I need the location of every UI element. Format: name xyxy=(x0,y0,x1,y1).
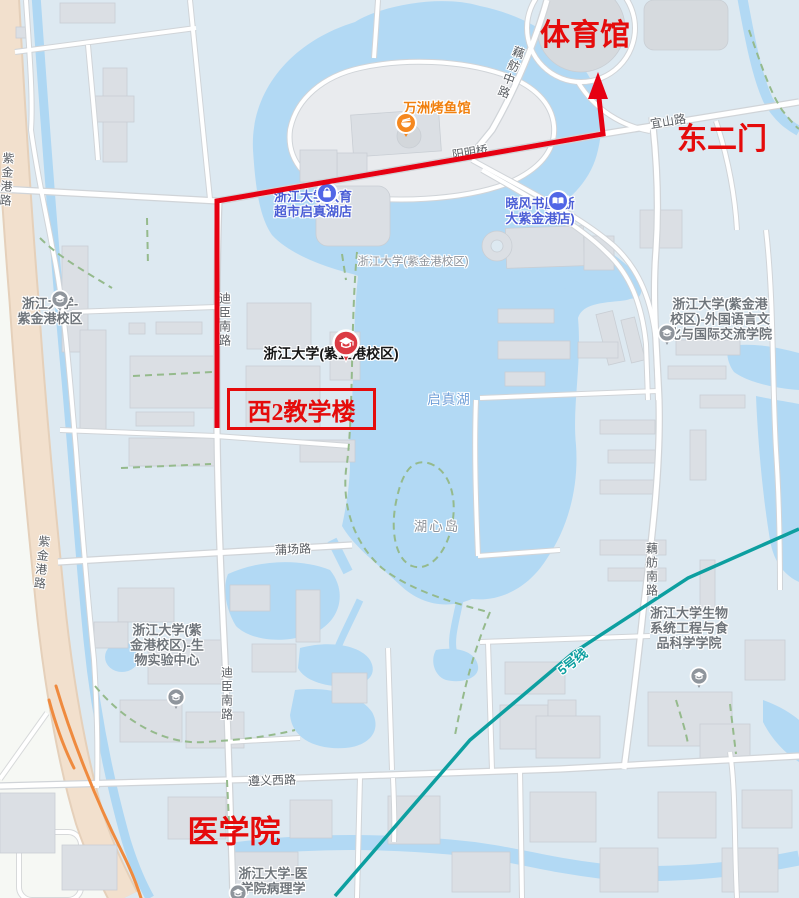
annotation-east-gate: 东二门 xyxy=(677,114,767,158)
annotation-gym: 体育馆 xyxy=(540,10,630,54)
book-icon xyxy=(543,186,573,222)
graduation-cap-icon xyxy=(327,324,365,374)
campus-area-label: 浙江大学(紫金港校区) xyxy=(357,253,468,269)
road-label-oufang-south: 藕舫南路 xyxy=(644,542,661,598)
annotation-teaching-building-box: 西2教学楼 xyxy=(227,388,376,430)
road-label-zunyi-west: 遵义西路 xyxy=(248,771,297,790)
island-label: 湖心岛 xyxy=(414,515,461,535)
lake-label: 启真湖 xyxy=(427,388,471,408)
graduation-cap-icon xyxy=(225,880,251,898)
poi-label-foreign-college[interactable]: 浙江大学(紫金港 校区)-外国语言文 化与国际交流学院 xyxy=(668,297,772,342)
poi-label-bio-food-college[interactable]: 浙江大学生物 系统工程与食 品科学学院 xyxy=(650,606,728,651)
graduation-cap-icon xyxy=(163,684,189,716)
graduation-cap-icon xyxy=(654,320,680,352)
shopping-bag-icon xyxy=(312,178,342,214)
road-label-puchang: 蒲场路 xyxy=(275,540,312,559)
road-label-dichen-south-2: 迪臣南路 xyxy=(219,666,236,722)
poi-label-bio-lab-center[interactable]: 浙江大学(紫 金港校区)-生 物实验中心 xyxy=(130,623,204,668)
bowl-icon xyxy=(391,108,421,144)
graduation-cap-icon xyxy=(47,286,73,318)
road-label-dichen-south-1: 迪臣南路 xyxy=(217,292,234,348)
graduation-cap-icon xyxy=(686,663,712,695)
annotation-medical-school: 医学院 xyxy=(188,807,281,852)
map-canvas[interactable]: 紫金港路 紫金港路 迪臣南路 迪臣南路 藕舫中路 藕舫南路 宜山路 阳明桥 蒲场… xyxy=(0,0,799,898)
annotation-teaching-building-text: 西2教学楼 xyxy=(248,392,356,427)
